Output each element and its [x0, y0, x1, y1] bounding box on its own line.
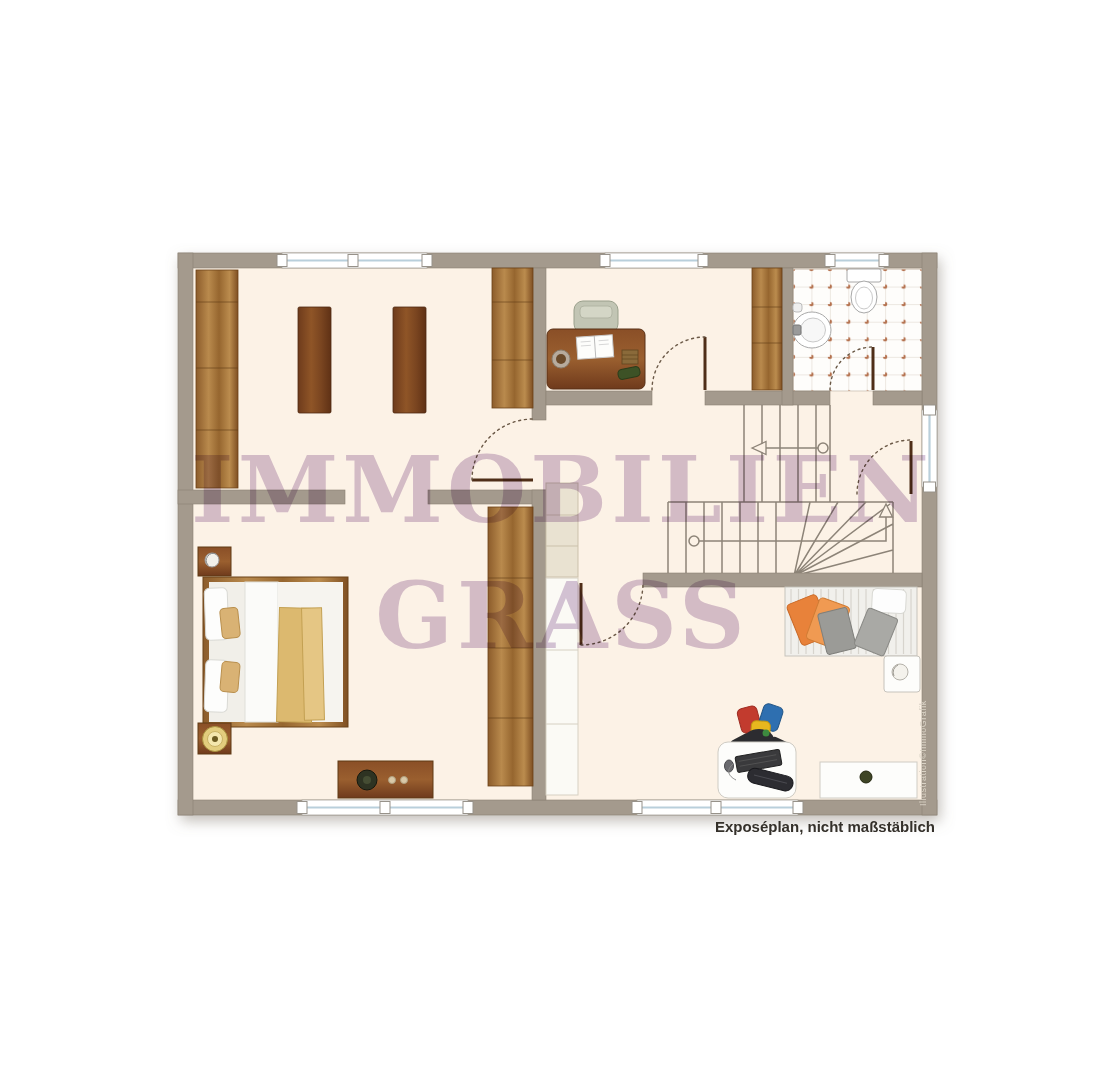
cabinet-right — [492, 268, 533, 408]
dresser — [338, 761, 433, 798]
window-bedroom — [297, 800, 473, 815]
nightstand-top — [198, 547, 231, 576]
decor-shell — [205, 553, 219, 567]
low-table — [820, 762, 917, 798]
wall-bath-left — [782, 268, 793, 405]
cushion — [219, 607, 240, 639]
desk-papers — [622, 350, 638, 364]
bench — [298, 307, 331, 413]
office-chair — [574, 301, 618, 333]
floor-plan-drawing: Illustration©ImmoGrafik IMMOBILIEN GRASS… — [0, 0, 1112, 1080]
wall-outer-bottom — [178, 800, 937, 815]
illustration-credit: Illustration©ImmoGrafik — [918, 700, 928, 806]
white-pillow — [871, 588, 906, 614]
nightstand-bottom — [198, 723, 231, 754]
wall-bath-bottom — [873, 391, 922, 405]
soap-dish — [793, 303, 802, 312]
window-dressing — [277, 253, 432, 268]
double-bed — [203, 577, 348, 727]
window-living — [632, 800, 803, 815]
wall-office-bottom — [546, 391, 652, 405]
wall-hall-top — [705, 391, 830, 405]
watermark-line1: IMMOBILIEN — [191, 437, 933, 543]
bowl — [892, 664, 908, 680]
daybed — [785, 587, 917, 657]
faucet — [793, 325, 801, 335]
cushion — [220, 661, 241, 692]
floor-plan-page: Illustration©ImmoGrafik IMMOBILIEN GRASS… — [0, 0, 1112, 1080]
wall-dressing-hall — [532, 268, 546, 420]
watermark-line2: GRASS — [375, 563, 748, 669]
bench — [393, 307, 426, 413]
computer-desk — [718, 742, 796, 798]
desk-cup-contents — [556, 354, 566, 364]
plan-caption: Exposéplan, nicht maßstäblich — [715, 818, 935, 835]
window-office — [600, 253, 708, 268]
office-cabinet — [752, 268, 782, 390]
blanket — [302, 608, 325, 720]
plant-dot — [860, 771, 872, 783]
window-bathroom — [825, 253, 889, 268]
office-desk — [547, 329, 645, 389]
side-table — [884, 656, 920, 692]
folded-sheet — [245, 582, 278, 722]
open-book — [576, 335, 613, 359]
